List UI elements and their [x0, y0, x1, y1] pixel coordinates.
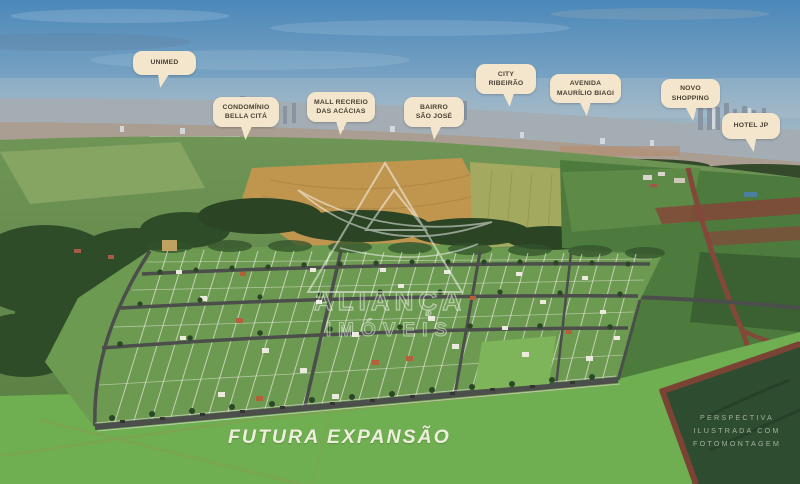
callout-label: CITY RIBEIRÃO — [484, 70, 528, 88]
callout-label: CONDOMÍNIO BELLA CITÁ — [222, 103, 270, 121]
callout-mall-recreio-acacias: MALL RECREIO DAS ACÁCIAS — [307, 92, 375, 122]
sports-court — [162, 240, 177, 251]
disclaimer-text: PERSPECTIVA ILUSTRADA COM FOTOMONTAGEM — [678, 412, 796, 451]
watermark-line2: IMÓVEIS — [326, 319, 454, 341]
disclaimer-line3: FOTOMONTAGEM — [678, 438, 796, 451]
callout-bairro-sao-jose: BAIRRO SÃO JOSÉ — [404, 97, 464, 127]
callout-label: NOVO SHOPPING — [668, 84, 713, 102]
watermark-line1: ALIANÇA — [314, 286, 466, 316]
callout-label: BAIRRO SÃO JOSÉ — [414, 103, 454, 121]
callout-hotel-jp: HOTEL JP — [722, 113, 780, 139]
callout-tail — [334, 120, 348, 135]
callout-tail — [502, 92, 515, 107]
future-expansion-label: FUTURA EXPANSÃO — [228, 426, 451, 449]
park-patch — [474, 336, 556, 390]
disclaimer-line2: ILUSTRADA COM — [678, 425, 796, 438]
callout-tail — [428, 125, 442, 140]
callout-label: UNIMED — [150, 58, 178, 67]
callout-label: AVENIDA MAURÍLIO BIAGI — [554, 79, 617, 97]
callout-avenida-maurilio-biagi: AVENIDA MAURÍLIO BIAGI — [550, 74, 621, 103]
disclaimer-line1: PERSPECTIVA — [678, 412, 796, 425]
callout-city-ribeirao: CITY RIBEIRÃO — [476, 64, 536, 94]
aerial-photomontage: ALIANÇA IMÓVEIS UNIMED CONDOMÍNIO BELLA … — [0, 0, 800, 484]
callout-tail — [579, 101, 593, 116]
callout-novo-shopping: NOVO SHOPPING — [661, 79, 720, 108]
callout-tail — [239, 125, 252, 140]
callout-label: MALL RECREIO DAS ACÁCIAS — [314, 98, 368, 116]
callout-condominio-bella-cita: CONDOMÍNIO BELLA CITÁ — [213, 97, 279, 127]
callout-unimed: UNIMED — [133, 51, 196, 75]
callout-tail — [685, 106, 699, 121]
callout-label: HOTEL JP — [734, 121, 769, 130]
